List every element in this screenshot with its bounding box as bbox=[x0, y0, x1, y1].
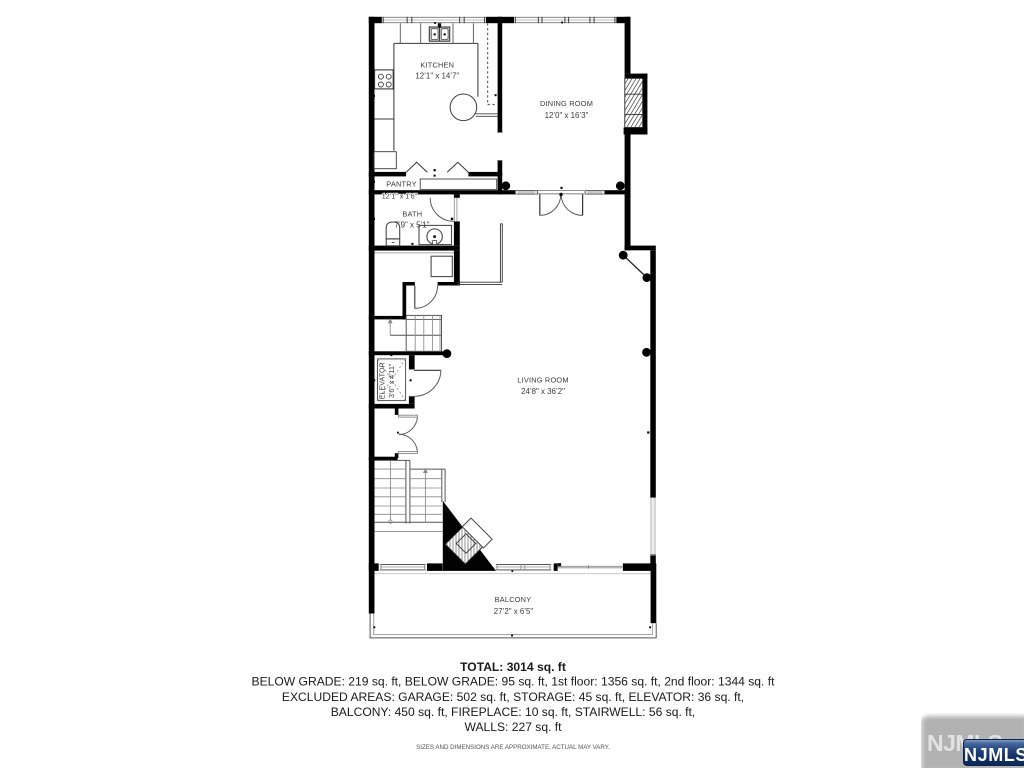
svg-text:7’9" x 5’1": 7’9" x 5’1" bbox=[395, 221, 430, 230]
svg-text:12’1" x 14’7": 12’1" x 14’7" bbox=[415, 72, 459, 81]
svg-text:TOTAL: 3014 sq. ft: TOTAL: 3014 sq. ft bbox=[460, 660, 566, 674]
svg-text:BALCONY: BALCONY bbox=[495, 595, 532, 604]
svg-text:DINING ROOM: DINING ROOM bbox=[540, 99, 593, 108]
svg-text:ELEVATOR: ELEVATOR bbox=[380, 362, 387, 399]
svg-text:KITCHEN: KITCHEN bbox=[420, 61, 454, 70]
svg-text:WALLS: 227 sq. ft: WALLS: 227 sq. ft bbox=[464, 720, 562, 734]
svg-text:12’1" x 1’6": 12’1" x 1’6" bbox=[382, 193, 418, 201]
svg-text:3’6" x 4’11": 3’6" x 4’11" bbox=[389, 363, 396, 398]
svg-text:BATH: BATH bbox=[402, 209, 422, 218]
svg-text:EXCLUDED AREAS: GARAGE: 502 sq: EXCLUDED AREAS: GARAGE: 502 sq. ft, STOR… bbox=[282, 690, 744, 704]
svg-text:12’0" x 16’3": 12’0" x 16’3" bbox=[545, 111, 589, 120]
svg-text:BALCONY: 450 sq. ft, FIREPLACE: BALCONY: 450 sq. ft, FIREPLACE: 10 sq. f… bbox=[331, 705, 696, 719]
svg-text:PANTRY: PANTRY bbox=[386, 180, 417, 189]
svg-text:BELOW GRADE: 219 sq. ft, BELOW: BELOW GRADE: 219 sq. ft, BELOW GRADE: 95… bbox=[252, 674, 776, 688]
svg-text:24’8" x 36’2": 24’8" x 36’2" bbox=[521, 387, 565, 396]
svg-text:LIVING ROOM: LIVING ROOM bbox=[517, 376, 568, 385]
svg-text:27’2" x 6’5": 27’2" x 6’5" bbox=[494, 607, 534, 616]
svg-text:SIZES AND DIMENSIONS ARE APPRO: SIZES AND DIMENSIONS ARE APPROXIMATE, AC… bbox=[416, 744, 610, 751]
